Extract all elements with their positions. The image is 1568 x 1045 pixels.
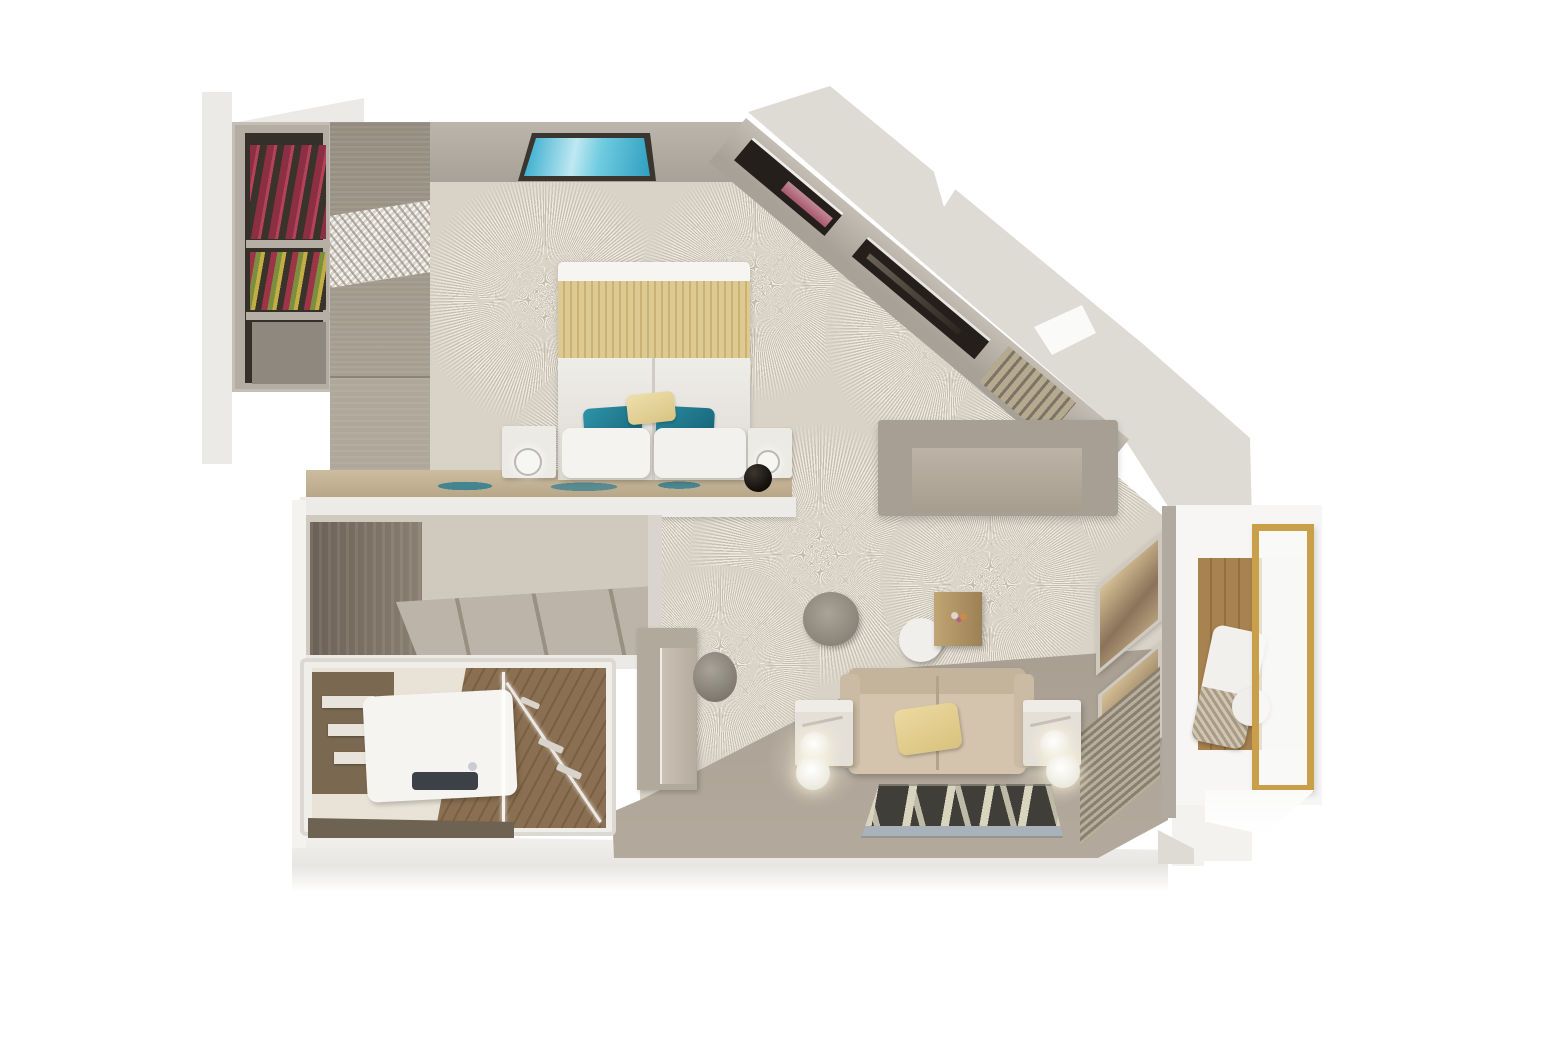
hall-wardrobe-doors bbox=[310, 522, 422, 658]
bed-gold-runner bbox=[558, 281, 750, 358]
hanging-clothes-top bbox=[250, 145, 326, 239]
tv-cabinet-front bbox=[660, 648, 696, 784]
white-pillow-left bbox=[562, 428, 650, 478]
vanity-stool bbox=[693, 652, 737, 702]
floor-lamp-left-glow bbox=[796, 756, 830, 790]
half-wall-front bbox=[300, 497, 796, 517]
leaf-pattern-rug bbox=[855, 782, 1067, 840]
floor-lamp-right-glow bbox=[1046, 754, 1080, 788]
balcony-glass-railing bbox=[1252, 524, 1314, 792]
wardrobe-empty-shelf bbox=[252, 322, 326, 384]
flower-decor bbox=[948, 610, 970, 624]
exterior-wall-left bbox=[202, 92, 232, 464]
wall-screen bbox=[524, 138, 650, 176]
black-sphere-decor bbox=[744, 464, 772, 492]
wardrobe-shelf bbox=[246, 312, 330, 320]
sofa-pillow bbox=[893, 702, 963, 756]
exterior-wall-top bbox=[228, 98, 364, 124]
round-ottoman bbox=[803, 592, 859, 646]
window-blind bbox=[781, 181, 833, 227]
floorplan-canvas bbox=[0, 0, 1568, 1045]
console-table-runner bbox=[380, 478, 720, 494]
hanging-clothes-middle bbox=[250, 252, 326, 310]
right-window-wall bbox=[1162, 506, 1176, 818]
wood-panel-cabinet bbox=[330, 376, 430, 470]
vanity-faucet bbox=[468, 762, 477, 771]
shower-glass-panel bbox=[502, 672, 505, 822]
bed-folded-sheet bbox=[558, 262, 750, 282]
bedside-lamp-left bbox=[514, 448, 542, 476]
wardrobe-shelf bbox=[246, 240, 330, 248]
desk-surface bbox=[912, 448, 1082, 512]
cream-accent-pillow bbox=[626, 391, 677, 426]
vanity-sink bbox=[412, 772, 478, 790]
white-pillow-right bbox=[654, 428, 746, 478]
